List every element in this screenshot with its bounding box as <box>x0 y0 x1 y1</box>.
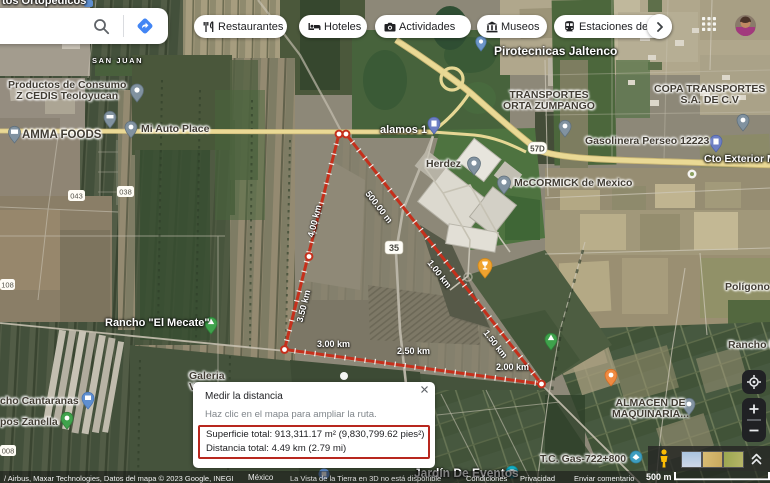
svg-text:108: 108 <box>1 281 14 290</box>
svg-text:35: 35 <box>389 243 399 253</box>
svg-text:008: 008 <box>2 447 15 456</box>
svg-text:57D: 57D <box>530 145 545 154</box>
svg-text:038: 038 <box>119 188 132 197</box>
svg-text:043: 043 <box>70 192 83 201</box>
